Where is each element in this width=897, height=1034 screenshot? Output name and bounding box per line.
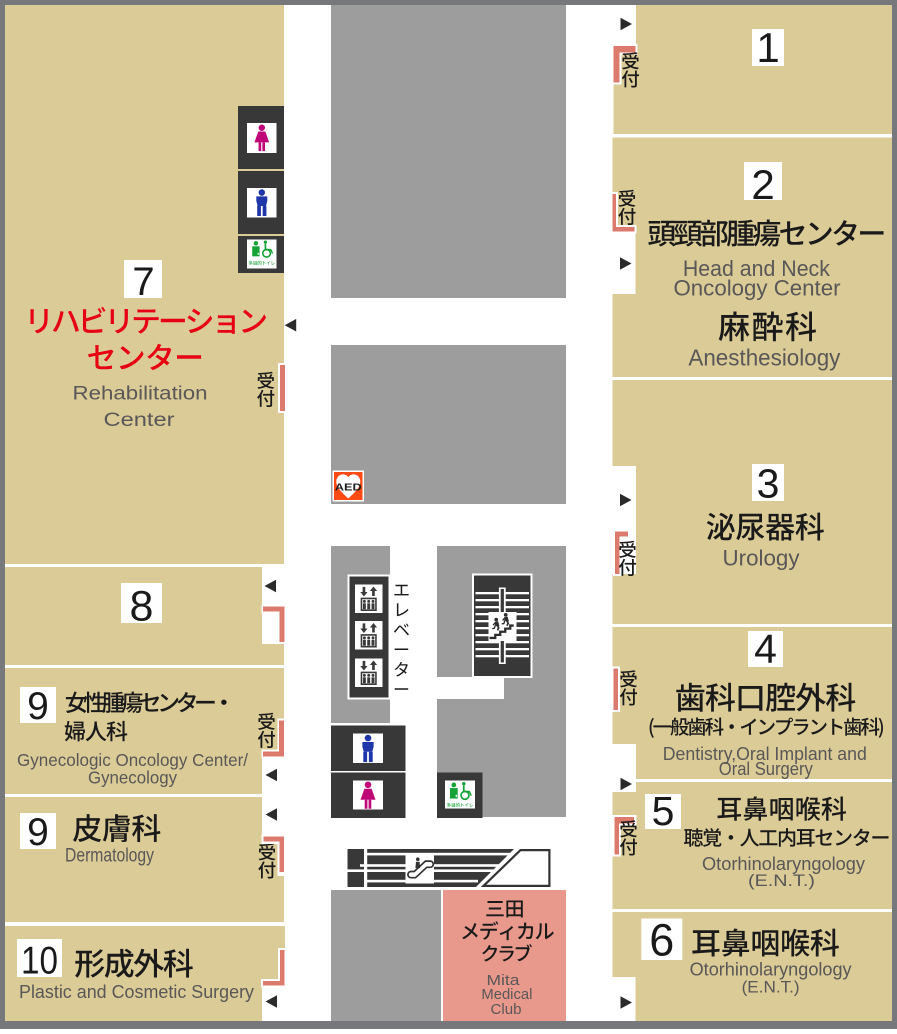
- svg-text:9: 9: [27, 685, 49, 728]
- svg-text:Dermatology: Dermatology: [65, 846, 154, 867]
- svg-text:Gynecology: Gynecology: [88, 768, 177, 788]
- svg-text:1: 1: [756, 24, 779, 71]
- svg-text:Otorhinolaryngology: Otorhinolaryngology: [690, 959, 853, 980]
- svg-text:8: 8: [130, 583, 154, 631]
- svg-text:Anesthesiology: Anesthesiology: [688, 345, 840, 371]
- svg-text:3: 3: [757, 461, 780, 507]
- svg-text:Plastic and Cosmetic Surgery: Plastic and Cosmetic Surgery: [19, 981, 255, 1002]
- svg-text:Center: Center: [104, 410, 176, 431]
- svg-text:Club: Club: [491, 1001, 522, 1018]
- svg-text:Urology: Urology: [723, 546, 800, 571]
- svg-text:5: 5: [652, 788, 675, 834]
- svg-text:Oral Surgery: Oral Surgery: [719, 759, 813, 779]
- svg-text:(E.N.T.): (E.N.T.): [748, 871, 815, 890]
- svg-text:2: 2: [751, 161, 774, 208]
- svg-text:Rehabilitation: Rehabilitation: [73, 384, 208, 405]
- svg-text:10: 10: [21, 940, 58, 983]
- svg-text:Oncology Center: Oncology Center: [674, 275, 841, 300]
- svg-text:AED: AED: [335, 481, 363, 493]
- svg-text:(E.N.T.): (E.N.T.): [742, 978, 800, 997]
- svg-text:7: 7: [132, 260, 154, 304]
- svg-text:9: 9: [27, 811, 49, 854]
- svg-text:4: 4: [754, 626, 777, 672]
- svg-text:6: 6: [649, 915, 674, 966]
